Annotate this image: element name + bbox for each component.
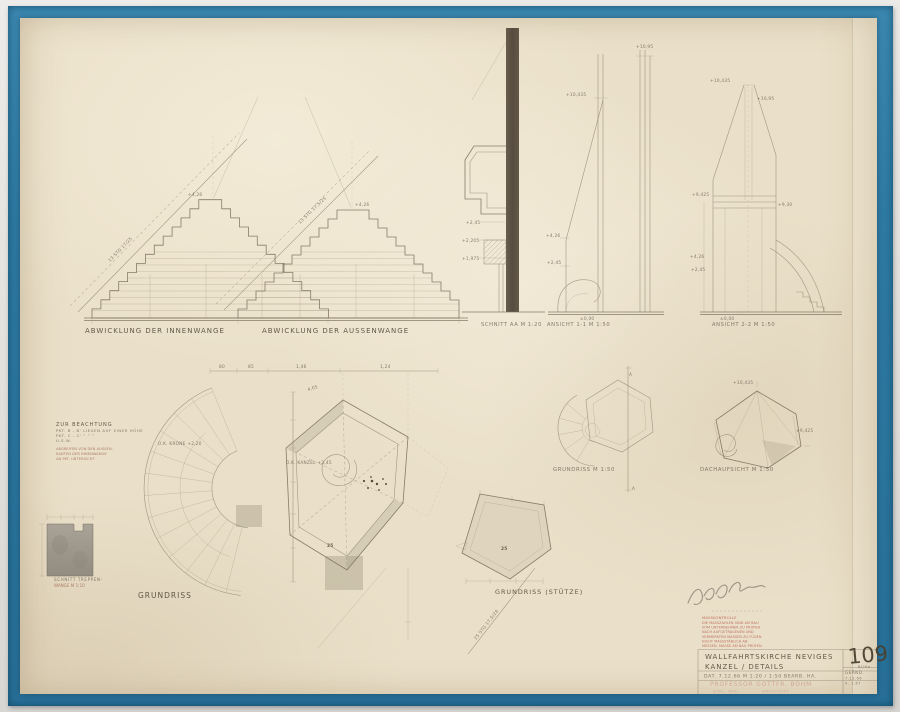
- dimension-label: 1,24: [380, 364, 391, 370]
- drawing-linework: ABWICKLUNG DER INNENWANGE ABWICKLUNG DER…: [0, 0, 900, 712]
- dimension-label: +9,425: [692, 192, 709, 198]
- label-schnitt-aa: SCHNITT AA M 1:20: [481, 322, 542, 328]
- dimension-label: 25 STG 17,5/26: [473, 608, 500, 641]
- dimension-label: +9,425: [796, 428, 813, 434]
- note-red-line: KANTEN DER INNENWANGE: [56, 452, 107, 456]
- stamp-line: NACH AUFGETRAGENEN UND: [702, 630, 754, 634]
- dimension-label: 85: [248, 364, 254, 370]
- label-ansicht-1-1: ANSICHT 1-1 M 1:50: [547, 322, 610, 328]
- section-aa: [462, 28, 545, 312]
- stamp-line: VERMERKTEN MASSEN ZU FÜGEN: [702, 634, 762, 639]
- hatched-step-block: [484, 240, 506, 264]
- label-ansicht-2-2: ANSICHT 2-2 M 1:50: [712, 322, 775, 328]
- label-grundriss: GRUNDRISS: [138, 591, 192, 600]
- drawing-number-sub: Bl/Ha: [858, 665, 871, 669]
- dimension-label: +9,30: [778, 202, 792, 208]
- drawing-titles: ABWICKLUNG DER INNENWANGE ABWICKLUNG DER…: [54, 322, 775, 600]
- label-abwicklung-aussenwange: ABWICKLUNG DER AUSSENWANGE: [262, 327, 409, 335]
- elevation-1-1: [548, 50, 664, 314]
- dimension-label: +2,45: [691, 267, 705, 273]
- note-block: ZUR BEACHTUNG PKT. B - B' LIEGEN AUF EIN…: [56, 422, 143, 461]
- dimension-label: 25: [327, 543, 333, 549]
- label-grundriss-stuetze: GRUNDRISS (STÜTZE): [495, 587, 583, 596]
- geaend-label: GEÄND.: [845, 670, 864, 675]
- red-stamp: MASSKONTROLLE DIE MASSZAHLEN SIND AM BAU…: [702, 615, 762, 648]
- dimension-label: +2,45: [466, 220, 480, 226]
- stamp-line: MESSEN. MASSE AM BAU PRÜFEN: [702, 643, 762, 648]
- label-abwicklung-innenwange: ABWICKLUNG DER INNENWANGE: [85, 327, 225, 335]
- dimension-label: O.K. KANZEL +2,45: [286, 460, 332, 466]
- plan-stuetze: [456, 490, 551, 579]
- project-title: WALLFAHRTSKIRCHE NEVIGES: [705, 653, 833, 661]
- label-wange-1: SCHNITT TREPPEN-: [54, 577, 103, 582]
- dimension-label: +4,26: [355, 202, 369, 208]
- concrete-post: [506, 28, 519, 312]
- dimension-label: +10,435: [710, 78, 730, 84]
- photographed-drawing-sheet: ABWICKLUNG DER INNENWANGE ABWICKLUNG DER…: [0, 0, 900, 712]
- dimension-label: +4,26: [690, 254, 704, 260]
- roof-plan-dachaufsicht: [714, 381, 810, 468]
- sheet-title: KANZEL / DETAILS: [705, 663, 784, 671]
- dimension-label: 25: [501, 546, 507, 552]
- plan-grundriss-small: [558, 366, 653, 492]
- stair-development-elevations: [70, 97, 470, 324]
- dimension-label: +4,26: [188, 192, 202, 198]
- elevation-2-2: [700, 85, 842, 314]
- dimension-label: A: [632, 486, 635, 492]
- note-red-line: AN PKT. UNTERSICHT: [56, 457, 95, 461]
- geaend-entry: 9. 1.67: [845, 682, 861, 686]
- label-wange-2: WANGE M 1:10: [54, 583, 85, 588]
- signature: [688, 582, 765, 611]
- note-red-line: ABGREIFEN VON DEN AUSSEN-: [56, 447, 114, 451]
- dimension-label: O.K. KRONE +2,20: [158, 441, 202, 447]
- dimension-label: +10,435: [566, 92, 586, 98]
- dimension-label: +1,975: [462, 256, 479, 262]
- stamp-line: MASSKONTROLLE: [702, 615, 737, 620]
- wall-section-detail: [39, 514, 93, 576]
- stamp-line: NICHT MASSSTÄBLICH AB-: [702, 638, 749, 643]
- architect-stamp-right: ARCHITEKT: [762, 690, 790, 694]
- dimension-label: +10,95: [757, 96, 774, 102]
- stamp-line: DIE MASSZAHLEN SIND AM BAU: [702, 621, 759, 625]
- date-scale-line: DAT. 7.12.66 M 1:20 / 1:50 BEARB. HA.: [704, 674, 817, 680]
- dimension-label: +2,45: [547, 260, 561, 266]
- dimension-label: +10,435: [733, 380, 753, 386]
- dimension-label: A: [629, 372, 632, 378]
- pencil-marks: [363, 476, 387, 491]
- label-grundriss-m150: GRUNDRISS M 1:50: [553, 467, 615, 473]
- dimension-label: +10,95: [636, 44, 653, 50]
- dimension-label: +2,205: [462, 238, 479, 244]
- dimension-label: ±0,00: [580, 316, 594, 322]
- dimension-label: ±0,00: [720, 316, 734, 322]
- architect-stamp-name: PROFESSOR GOTTFR. BÖHM: [710, 681, 812, 688]
- architect-stamp-left: DIPL. ING.: [713, 690, 739, 694]
- dimension-label: 1,46: [296, 364, 307, 370]
- label-dachaufsicht: DACHAUFSICHT M 1:50: [700, 467, 774, 473]
- stamp-line: VOM UNTERNEHMER ZU PRÜFEN: [702, 625, 761, 630]
- dimension-label: 80: [219, 364, 225, 370]
- geaend-entry: 7.12.66: [845, 677, 862, 681]
- dimension-label: 4,05: [307, 384, 319, 393]
- note-line: U.S.W.: [56, 438, 72, 443]
- dimension-label: +4,26: [546, 233, 560, 239]
